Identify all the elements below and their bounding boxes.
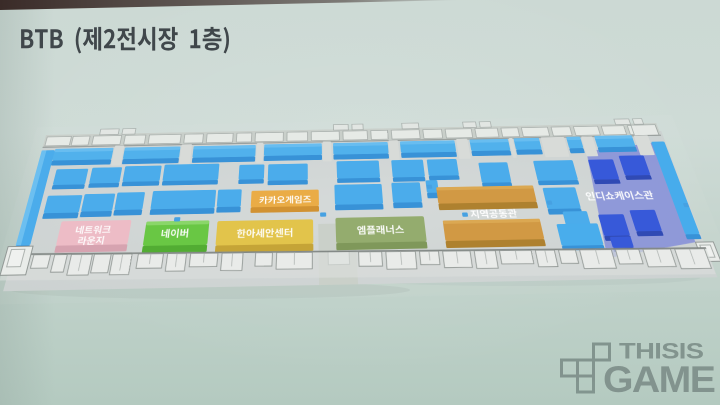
svg-text:GAME: GAME [603,359,714,401]
